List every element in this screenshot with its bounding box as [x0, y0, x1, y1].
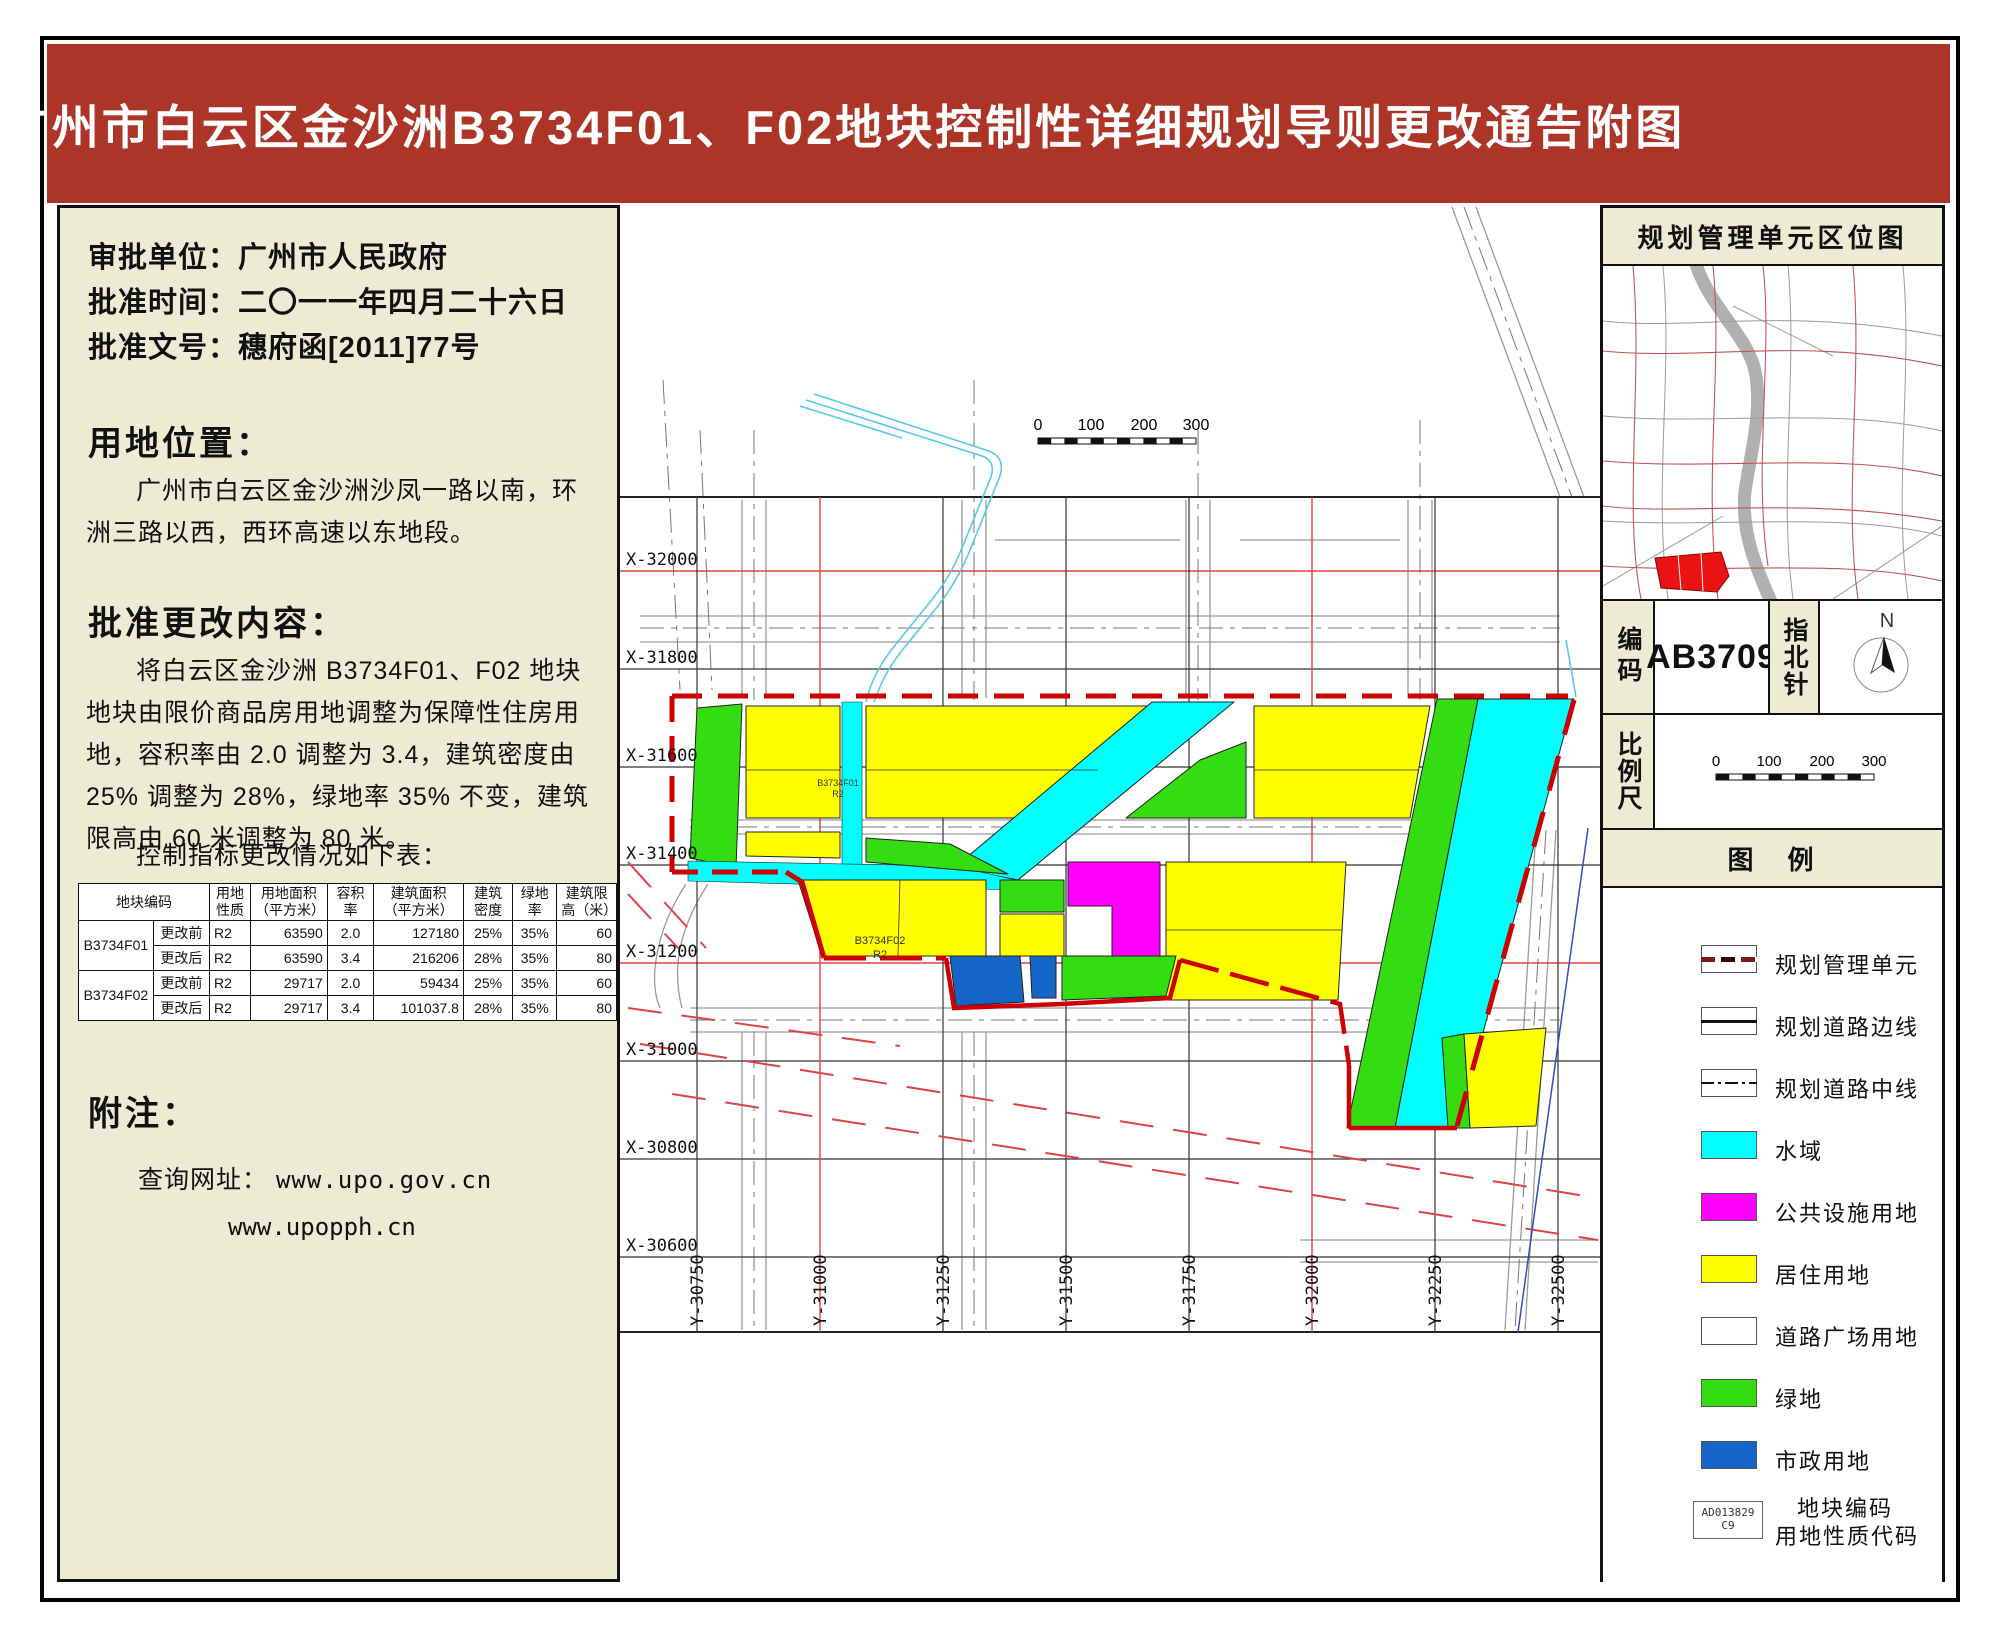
- plot-nature-label: R2: [832, 789, 844, 799]
- x-axis-label: X-31600: [626, 746, 698, 766]
- scale-label-cell: 比例尺: [1603, 715, 1655, 828]
- mini-map-river: [1695, 266, 1773, 599]
- cell-far: 2.0: [327, 921, 373, 946]
- road-center-swatch: [1701, 1069, 1757, 1097]
- scale-tick: 300: [1183, 417, 1210, 434]
- cell-barea: 101037.8: [374, 996, 464, 1021]
- scale-bar-label: 比例尺: [1610, 731, 1646, 812]
- mini-map-red-roads: [1603, 266, 1942, 599]
- legend-item-road-center: 规划道路中线: [1603, 1067, 1942, 1107]
- header-band: 广州市白云区金沙洲B3734F01、F02地块控制性详细规划导则更改通告附图: [47, 44, 1950, 203]
- approval-date-value: 二〇一一年四月二十六日: [238, 287, 568, 319]
- cell-block: B3734F02: [79, 971, 154, 1021]
- approval-date-line: 批准时间：二〇一一年四月二十六日: [88, 281, 568, 326]
- table-row: 更改后 R2 29717 3.4 101037.8 28% 35% 80: [79, 996, 617, 1021]
- cell-barea: 127180: [374, 921, 464, 946]
- north-arrow-icon: N: [1821, 607, 1941, 707]
- scale-tick: 100: [1078, 417, 1105, 434]
- cell-density: 28%: [463, 946, 512, 971]
- cell-area: 29717: [250, 996, 327, 1021]
- header-land-area: 用地面积（平方米）: [250, 884, 327, 921]
- scale-tick: 0: [1034, 417, 1043, 434]
- legend-item-road-edge: 规划道路边线: [1603, 1005, 1942, 1045]
- water-stream-strip: [842, 702, 862, 882]
- cell-density: 25%: [463, 921, 512, 946]
- main-plan-map: 0 100 200 300 X-32000 X-31800 X-31600 X-…: [620, 205, 1600, 1582]
- scale-tick: 100: [1756, 753, 1781, 770]
- cell-height: 60: [557, 921, 617, 946]
- cell-density: 28%: [463, 996, 512, 1021]
- cell-nature: R2: [210, 971, 251, 996]
- cell-nature: R2: [210, 921, 251, 946]
- change-heading: 批准更改内容：: [88, 596, 347, 645]
- cell-height: 80: [557, 946, 617, 971]
- notes-heading: 附注：: [88, 1086, 199, 1135]
- cell-height: 60: [557, 971, 617, 996]
- query-url-2: www.upopph.cn: [228, 1213, 416, 1241]
- scale-tick: 200: [1131, 417, 1158, 434]
- cell-far: 2.0: [327, 971, 373, 996]
- table-header-row: 地块编码 用地性质 用地面积（平方米） 容积率 建筑面积（平方米） 建筑密度 绿…: [79, 884, 617, 921]
- map-scale-bar: 0 100 200 300: [1034, 417, 1210, 444]
- cell-far: 3.4: [327, 946, 373, 971]
- right-panel: 规划管理单元区位图: [1600, 205, 1945, 1582]
- legend-item-public-facility: 公共设施用地: [1603, 1191, 1942, 1231]
- query-url-line: 查询网址： www.upo.gov.cn: [138, 1160, 492, 1196]
- plan-map-svg: 0 100 200 300 X-32000 X-31800 X-31600 X-…: [620, 205, 1600, 1582]
- legend-item-municipal: 市政用地: [1603, 1439, 1942, 1479]
- scale-tick: 200: [1809, 753, 1834, 770]
- header-far: 容积率: [327, 884, 373, 921]
- cell-green: 35%: [513, 971, 557, 996]
- query-url-label: 查询网址：: [138, 1166, 268, 1194]
- x-axis-label: X-30600: [626, 1236, 698, 1256]
- cell-phase: 更改后: [153, 946, 209, 971]
- scale-tick: 0: [1711, 753, 1719, 770]
- north-arrow-label: 指北针: [1776, 617, 1812, 698]
- table-row: B3734F01 更改前 R2 63590 2.0 127180 25% 35%…: [79, 921, 617, 946]
- table-intro: 控制指标更改情况如下表：: [86, 836, 591, 872]
- y-axis-label: Y-32250: [1426, 1254, 1446, 1326]
- residential-block: [746, 706, 840, 818]
- plot-code-label: B3734F01: [817, 778, 859, 788]
- scale-row: 比例尺 0 100 200 300: [1603, 715, 1942, 830]
- green-patch: [1062, 956, 1176, 1000]
- water-swatch: [1701, 1131, 1757, 1159]
- query-url-1: www.upo.gov.cn: [276, 1166, 492, 1194]
- x-axis-label: X-31800: [626, 648, 698, 668]
- x-axis-label: X-31400: [626, 844, 698, 864]
- cell-density: 25%: [463, 971, 512, 996]
- green-strip-west: [690, 704, 742, 868]
- location-mini-map: [1603, 266, 1942, 601]
- plot-code-label: B3734F02: [855, 935, 906, 947]
- residential-block: [1464, 1028, 1546, 1128]
- panel-scale-bar: 0 100 200 300: [1655, 715, 1942, 828]
- cell-phase: 更改前: [153, 921, 209, 946]
- cell-nature: R2: [210, 996, 251, 1021]
- cell-barea: 216206: [374, 946, 464, 971]
- header-building-area: 建筑面积（平方米）: [374, 884, 464, 921]
- legend-item-water: 水域: [1603, 1129, 1942, 1169]
- cell-nature: R2: [210, 946, 251, 971]
- y-axis-label: Y-31500: [1057, 1254, 1077, 1326]
- code-row: 编码 AB3709 指北针 N: [1603, 601, 1942, 715]
- cell-area: 29717: [250, 971, 327, 996]
- compass-cell: N: [1820, 601, 1942, 713]
- cell-phase: 更改后: [153, 996, 209, 1021]
- left-panel: 审批单位：广州市人民政府 批准时间：二〇一一年四月二十六日 批准文号：穗府函[2…: [57, 205, 620, 1582]
- residential-block: [746, 832, 840, 858]
- header-land-nature: 用地性质: [210, 884, 251, 921]
- x-axis-label: X-30800: [626, 1138, 698, 1158]
- header-height-limit: 建筑限高（米）: [557, 884, 617, 921]
- approval-doc-value: 穗府函[2011]77号: [238, 332, 481, 364]
- header-block-code: 地块编码: [79, 884, 210, 921]
- mini-map-gray-roads: [1603, 266, 1942, 599]
- cell-phase: 更改前: [153, 971, 209, 996]
- y-axis-label: Y-32500: [1549, 1254, 1569, 1326]
- code-label: 编码: [1610, 626, 1646, 688]
- municipal-block: [950, 956, 1024, 1006]
- approval-unit-line: 审批单位：广州市人民政府: [88, 236, 568, 281]
- land-use-zones: [688, 699, 1574, 1128]
- municipal-swatch: [1701, 1441, 1757, 1469]
- y-axis-label: Y-30750: [688, 1254, 708, 1326]
- header-density: 建筑密度: [463, 884, 512, 921]
- residential-block: [1254, 706, 1430, 818]
- x-axis-label: X-31000: [626, 1040, 698, 1060]
- legend-item-green-space: 绿地: [1603, 1377, 1942, 1417]
- legend-title: 图 例: [1603, 830, 1942, 888]
- approval-date-label: 批准时间：: [88, 287, 238, 319]
- green-space-swatch: [1701, 1379, 1757, 1407]
- y-axis-label: Y-32000: [1303, 1254, 1323, 1326]
- approval-unit-value: 广州市人民政府: [238, 242, 448, 274]
- approval-doc-line: 批准文号：穗府函[2011]77号: [88, 326, 568, 371]
- y-axis-label: Y-31000: [811, 1254, 831, 1326]
- municipal-block: [1030, 956, 1056, 998]
- legend-item-residential: 居住用地: [1603, 1253, 1942, 1293]
- plot-nature-label: R2: [873, 949, 887, 961]
- cell-green: 35%: [513, 996, 557, 1021]
- cell-green: 35%: [513, 946, 557, 971]
- sample-plot-code: AD013829: [1694, 1506, 1762, 1519]
- x-axis-label: X-32000: [626, 550, 698, 570]
- mini-map-svg: [1603, 266, 1942, 599]
- sample-nature-code: C9: [1694, 1519, 1762, 1532]
- plan-sheet: 广州市白云区金沙洲B3734F01、F02地块控制性详细规划导则更改通告附图 审…: [0, 0, 2000, 1630]
- x-axis-label: X-31200: [626, 942, 698, 962]
- road-edge-swatch: [1701, 1007, 1757, 1035]
- cell-far: 3.4: [327, 996, 373, 1021]
- cell-green: 35%: [513, 921, 557, 946]
- page-title: 广州市白云区金沙洲B3734F01、F02地块控制性详细规划导则更改通告附图: [2, 89, 1995, 158]
- legend-item-plot-code: AD013829 C9 地块编码 用地性质代码: [1603, 1501, 1942, 1561]
- mini-map-highlight-plot: [1655, 552, 1729, 592]
- approval-doc-label: 批准文号：: [88, 332, 238, 364]
- unit-code-value: AB3709: [1655, 601, 1770, 713]
- plot-code-legend-label: 地块编码 用地性质代码: [1775, 1495, 1919, 1551]
- legend-item-planning-unit: 规划管理单元: [1603, 943, 1942, 983]
- table-row: B3734F02 更改前 R2 29717 2.0 59434 25% 35% …: [79, 971, 617, 996]
- public-facility-swatch: [1701, 1193, 1757, 1221]
- legend-item-road-square: 道路广场用地: [1603, 1315, 1942, 1355]
- approval-info: 审批单位：广州市人民政府 批准时间：二〇一一年四月二十六日 批准文号：穗府函[2…: [88, 236, 568, 371]
- plot-code-sample-box: AD013829 C9: [1693, 1501, 1763, 1539]
- change-paragraph: 将白云区金沙洲 B3734F01、F02 地块地块由限价商品房用地调整为保障性住…: [86, 650, 591, 860]
- north-letter: N: [1880, 610, 1894, 632]
- north-label-cell: 指北针: [1770, 601, 1820, 713]
- table-row: 更改后 R2 63590 3.4 216206 28% 35% 80: [79, 946, 617, 971]
- cell-height: 80: [557, 996, 617, 1021]
- road-square-swatch: [1701, 1317, 1757, 1345]
- residential-block: [1000, 914, 1064, 956]
- approval-unit-label: 审批单位：: [88, 242, 238, 274]
- cell-block: B3734F01: [79, 921, 154, 971]
- y-axis-label: Y-31750: [1180, 1254, 1200, 1326]
- scale-tick: 300: [1861, 753, 1886, 770]
- location-map-title: 规划管理单元区位图: [1603, 208, 1942, 266]
- planning-unit-swatch: [1701, 945, 1757, 973]
- residential-swatch: [1701, 1255, 1757, 1283]
- panel-scale-bar-svg: 0 100 200 300: [1694, 750, 1904, 794]
- header-green-rate: 绿地率: [513, 884, 557, 921]
- cell-area: 63590: [250, 946, 327, 971]
- green-patch: [1000, 880, 1064, 912]
- cell-barea: 59434: [374, 971, 464, 996]
- location-heading: 用地位置：: [88, 416, 273, 465]
- legend: 规划管理单元 规划道路边线 规划道路中线 水域 公共设施用地 居住用地: [1603, 888, 1942, 1585]
- cell-area: 63590: [250, 921, 327, 946]
- y-axis-label: Y-31250: [934, 1254, 954, 1326]
- control-indicator-table: 地块编码 用地性质 用地面积（平方米） 容积率 建筑面积（平方米） 建筑密度 绿…: [78, 883, 617, 1021]
- location-paragraph: 广州市白云区金沙洲沙凤一路以南，环洲三路以西，西环高速以东地段。: [86, 470, 591, 554]
